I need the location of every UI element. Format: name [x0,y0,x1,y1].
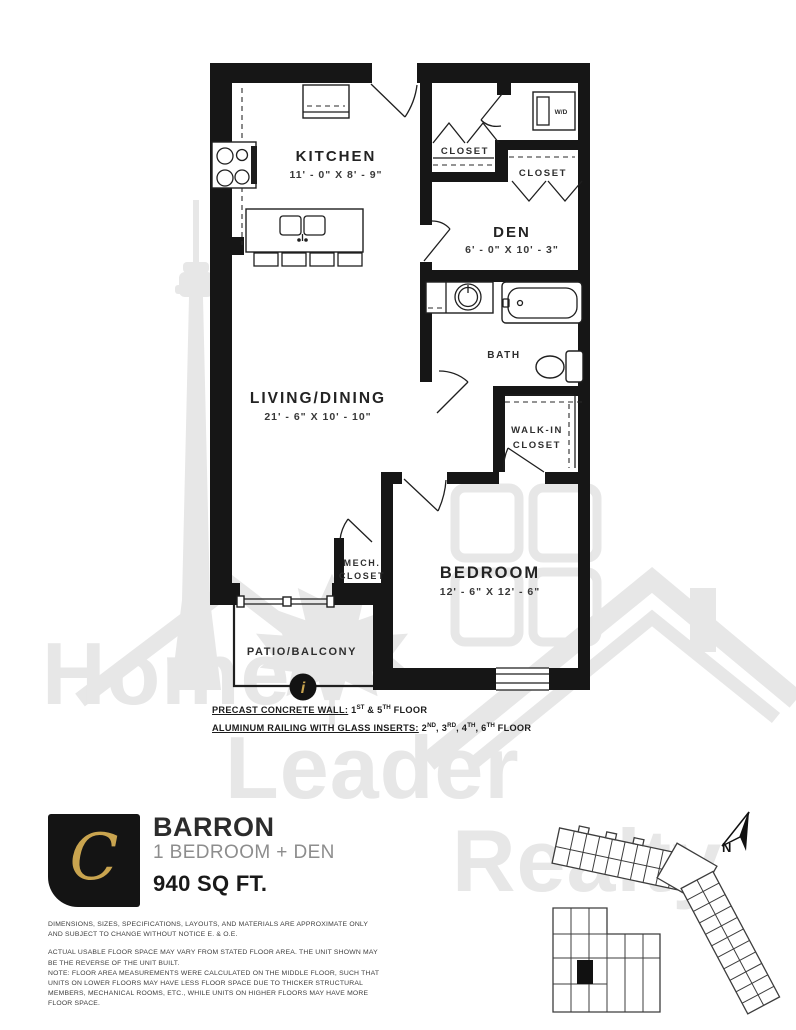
bedroom-door [404,479,446,511]
kitchen-dims: 11' - 0" X 8' - 9" [289,169,382,181]
mech-closet-door [340,519,372,542]
keyplan-wing-b [681,872,779,1014]
den-label: DEN [493,224,531,241]
bathtub-icon [502,282,582,323]
note-line: ALUMINUM RAILING WITH GLASS INSERTS: 2ND… [212,718,531,736]
floorplan-page: Home Leader Realty [0,0,796,1030]
living-dining-label: LIVING/DINING [250,390,386,407]
entry-door [371,84,417,117]
den-dims: 6' - 0" X 10' - 3" [465,244,559,256]
disclaimer-p3: NOTE: FLOOR AREA MEASUREMENTS WERE CALCU… [48,969,384,1010]
stool-icon [338,253,362,266]
living-dining-dims: 21' - 6" X 10' - 10" [264,411,371,423]
disclaimer-p2: ACTUAL USABLE FLOOR SPACE MAY VARY FROM … [48,948,384,968]
kitchen-island [246,209,363,266]
keyplan-lower-block [553,908,660,1012]
stool-icon [282,253,306,266]
den-door [424,221,450,261]
unit-name: BARRON [153,812,275,843]
unit-area: 940 SQ FT. [153,871,267,897]
wd-closet-door [481,94,502,126]
info-marker-icon: i [290,674,317,701]
disclaimer: DIMENSIONS, SIZES, SPECIFICATIONS, LAYOU… [48,920,384,1010]
north-arrow-icon: N [722,812,749,855]
note-line: PRECAST CONCRETE WALL: 1ST & 5TH FLOOR [212,700,531,718]
keyplan-highlighted-unit [577,960,593,984]
unit-logo-letter: C [70,821,119,895]
bath-vanity-icon [426,282,493,313]
wd-label: W/D [555,109,568,116]
bath-label: BATH [487,350,520,361]
toilet-icon [536,351,583,382]
kitchen-label: KITCHEN [296,148,377,165]
entry-closet-label: CLOSET [441,146,489,157]
walkin-closet-door [504,448,544,472]
washer-dryer-icon: W/D [533,92,575,130]
walkin-closet-label-2: CLOSET [513,440,561,451]
north-label: N [722,840,731,855]
key-plan: N [552,812,779,1014]
mech-closet-label-1: MECH. [344,558,381,568]
stool-icon [310,253,334,266]
bedroom-dims: 12' - 6" X 12' - 6" [440,586,541,598]
fridge-icon [303,85,349,118]
patio-label: PATIO/BALCONY [247,646,357,658]
walkin-closet-label-1: WALK-IN [511,425,563,436]
construction-notes: PRECAST CONCRETE WALL: 1ST & 5TH FLOORAL… [212,700,531,736]
bedroom-label: BEDROOM [440,564,540,582]
stool-icon [254,253,278,266]
disclaimer-p1: DIMENSIONS, SIZES, SPECIFICATIONS, LAYOU… [48,920,384,940]
unit-type: 1 BEDROOM + DEN [153,842,335,864]
entry-closet-bifold-door [433,123,465,143]
unit-logo-tile: C [48,814,140,907]
stove-icon [212,142,257,188]
bath-door [437,371,468,413]
bedroom-window [496,668,549,690]
den-closet-bifold-door [512,181,546,201]
mech-closet-label-2: CLOSET [339,571,385,581]
den-closet-bifold-door [548,181,582,201]
sliding-door [237,596,334,607]
den-closet-label: CLOSET [519,168,567,179]
svg-text:i: i [301,680,306,697]
